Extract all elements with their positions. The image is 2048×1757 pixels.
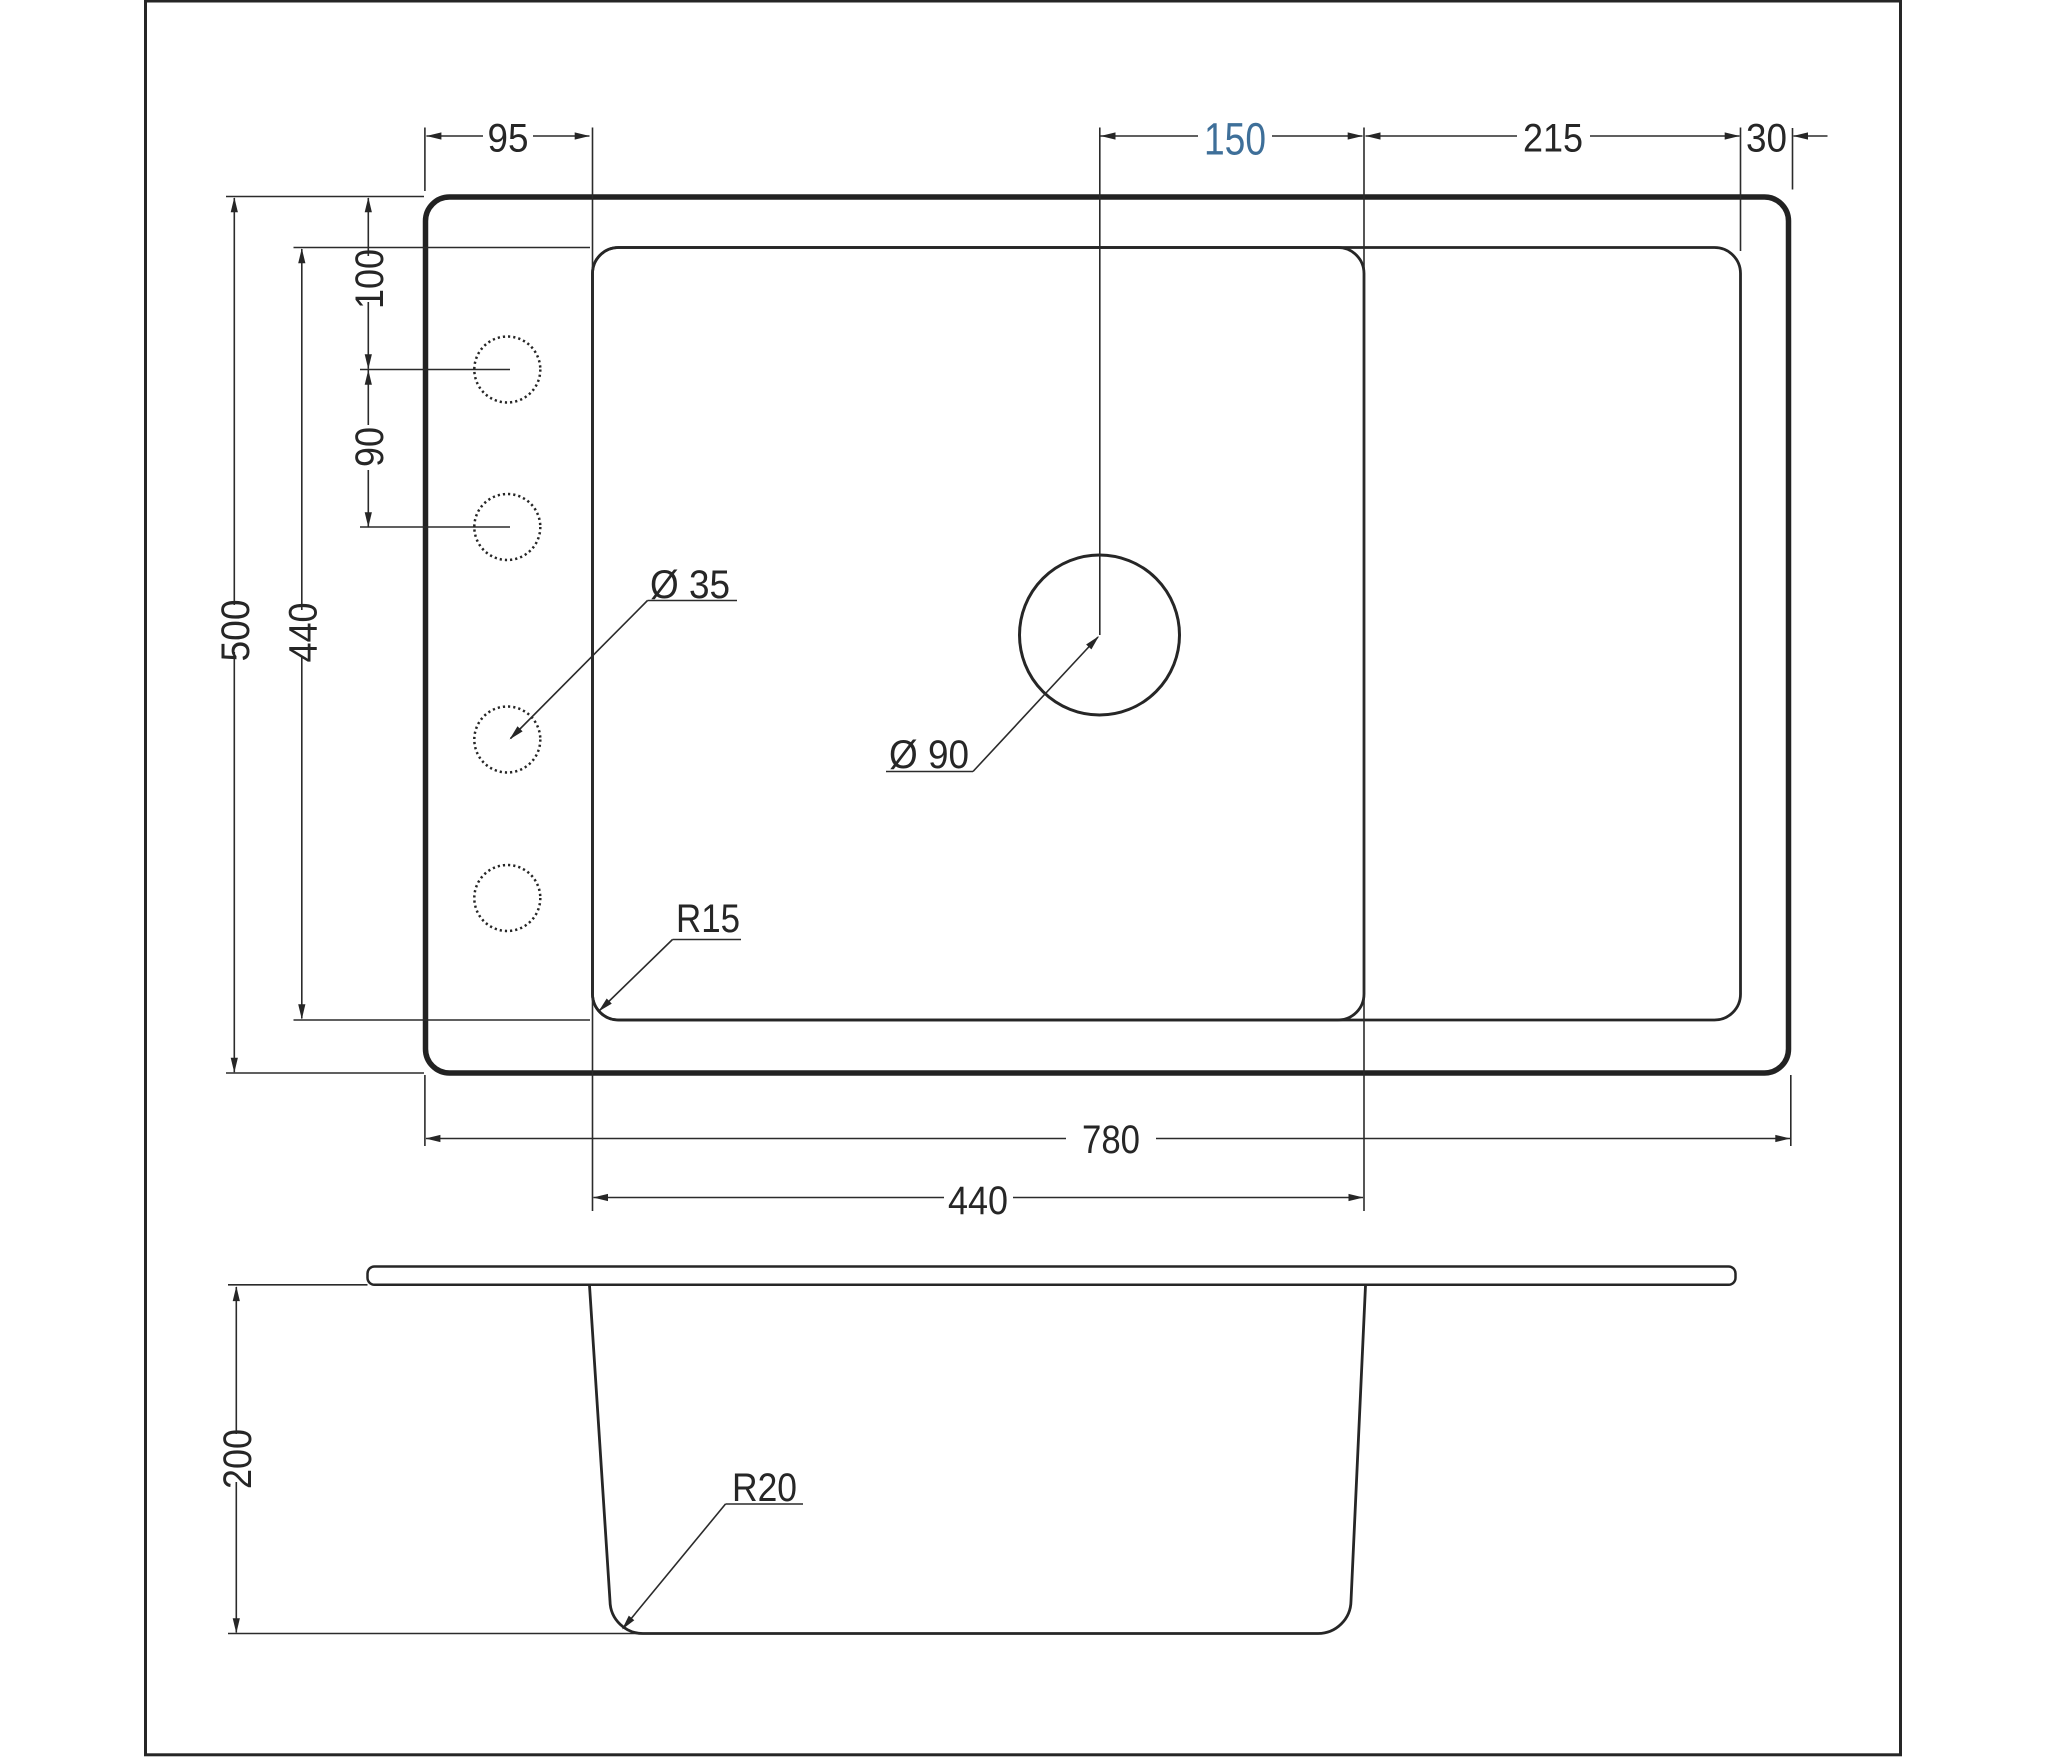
svg-text:R15: R15	[676, 897, 740, 941]
svg-text:440: 440	[948, 1179, 1008, 1223]
svg-text:780: 780	[1082, 1118, 1140, 1162]
svg-text:215: 215	[1523, 117, 1583, 161]
svg-text:150: 150	[1204, 113, 1266, 164]
svg-text:440: 440	[281, 603, 325, 663]
svg-text:90: 90	[348, 427, 392, 467]
svg-text:30: 30	[1746, 117, 1787, 161]
svg-text:95: 95	[488, 117, 529, 161]
svg-text:500: 500	[214, 600, 258, 662]
svg-text:Ø 90: Ø 90	[889, 733, 969, 777]
svg-text:100: 100	[348, 249, 392, 309]
svg-text:200: 200	[216, 1429, 260, 1489]
